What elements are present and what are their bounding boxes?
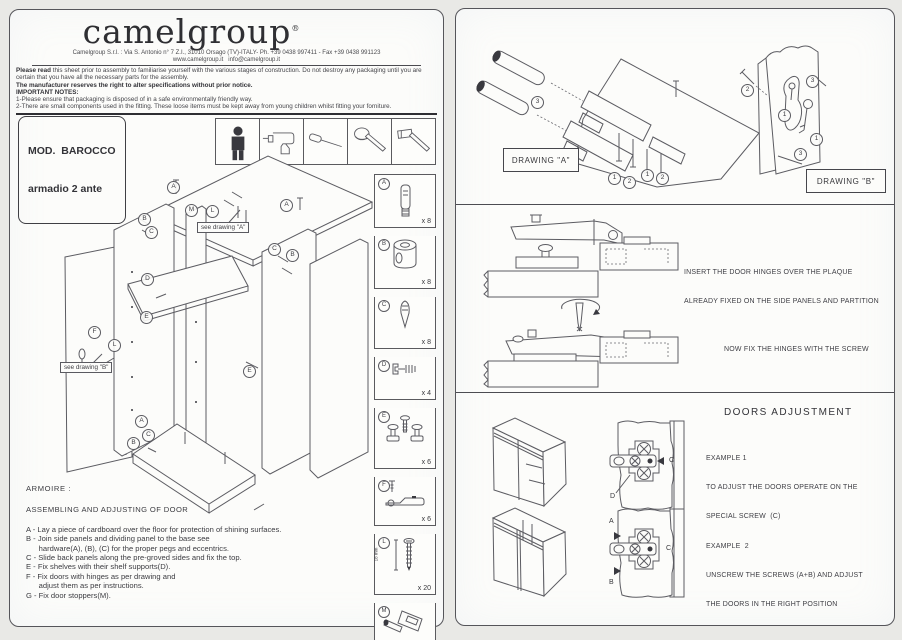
- part-L: L 18 mm x 20: [374, 534, 436, 595]
- part-L-dimension: 18 mm: [373, 548, 378, 562]
- drawing-a-num-3: 3: [531, 96, 544, 109]
- label-F-door: F: [88, 326, 101, 339]
- step-b-cont: hardware(A), (B), (C) for the proper peg…: [26, 544, 366, 553]
- tool-hammer: [392, 118, 436, 165]
- drawing-a-num-2: 2: [623, 176, 636, 189]
- note-manufacturer: The manufacturer reserves the right to a…: [16, 82, 437, 89]
- cam-lock-icon: [383, 236, 427, 272]
- scanned-instruction-sheet: camelgroup® Camelgroup S.r.l. : Via S. A…: [0, 0, 902, 640]
- step-b: B - Join side panels and dividing panel …: [26, 534, 366, 543]
- step-f: F - Fix doors with hinges as per drawing…: [26, 572, 366, 581]
- label-C-right: C: [268, 243, 281, 256]
- contact-line: www.camelgroup.it info@camelgroup.it: [10, 57, 443, 64]
- assembly-instructions: ARMOIRE : ASSEMBLING AND ADJUSTING OF DO…: [26, 484, 366, 600]
- label-C-left: C: [145, 226, 158, 239]
- example-1-title: EXAMPLE 1: [706, 454, 858, 464]
- example-2-line1: UNSCREW THE SCREWS (A+B) AND ADJUST: [706, 571, 863, 581]
- part-C: C x 8: [374, 297, 436, 349]
- plate2-label-B: B: [609, 579, 614, 586]
- step-g: G - Fix door stoppers(M).: [26, 591, 366, 600]
- label-E-right: E: [243, 365, 256, 378]
- part-C-qty: x 8: [422, 339, 431, 346]
- part-B-letter: B: [378, 239, 390, 251]
- company-address: Camelgroup S.r.l. : Via S. Antonio n° 7 …: [10, 50, 443, 64]
- hardware-parts-list: A x 8 B x 8 C: [374, 174, 436, 640]
- part-F-qty: x 6: [422, 516, 431, 523]
- part-A-letter: A: [378, 178, 390, 190]
- part-D-qty: x 4: [422, 390, 431, 397]
- example-2-line2: THE DOORS IN THE RIGHT POSITION: [706, 600, 863, 610]
- note-important: IMPORTANT NOTES:: [16, 89, 437, 96]
- callout-see-drawing-a: see drawing "A": [197, 222, 249, 233]
- part-B: B x 8: [374, 236, 436, 289]
- step-f-cont: adjust them as per instructions.: [26, 581, 366, 590]
- hinge-fix-text: NOW FIX THE HINGES WITH THE SCREW: [724, 345, 869, 355]
- label-B-right: B: [286, 249, 299, 262]
- label-A-top-left: A: [167, 181, 180, 194]
- callout-see-drawing-b: see drawing "B": [60, 362, 112, 373]
- drawing-b-num-3b: 3: [794, 148, 807, 161]
- part-E: E x 6: [374, 408, 436, 469]
- label-A-top-right: A: [280, 199, 293, 212]
- label-B-base: B: [127, 437, 140, 450]
- drawing-b-num-1b: 1: [810, 133, 823, 146]
- label-C-base: C: [142, 429, 155, 442]
- brand-logo: camelgroup®: [10, 12, 373, 51]
- doors-adjustment-title: DOORS ADJUSTMENT: [724, 407, 853, 418]
- label-L-top: L: [206, 205, 219, 218]
- part-F-letter: F: [378, 480, 390, 492]
- email: info@camelgroup.it: [228, 57, 280, 63]
- part-B-qty: x 8: [422, 279, 431, 286]
- step-e: E - Fix shelves with their shelf support…: [26, 562, 366, 571]
- part-F: F x 6: [374, 477, 436, 526]
- part-M-stopper: M x 2: [374, 603, 436, 640]
- assembly-notes: Please read this sheet prior to assembly…: [16, 67, 437, 115]
- left-page: camelgroup® Camelgroup S.r.l. : Via S. A…: [9, 9, 444, 627]
- assembly-steps: A - Lay a piece of cardboard over the fl…: [26, 525, 366, 600]
- part-E-qty: x 6: [422, 459, 431, 466]
- example-1-line2: SPECIAL SCREW (C): [706, 512, 858, 522]
- drawing-b-num-1: 1: [778, 109, 791, 122]
- part-D: D x 4: [374, 357, 436, 400]
- dowel-peg-icon: [383, 183, 427, 219]
- label-D-shelf: D: [141, 273, 154, 286]
- label-B-left: B: [138, 213, 151, 226]
- part-L-letter: L: [378, 537, 390, 549]
- label-M-top: M: [185, 204, 198, 217]
- website: www.camelgroup.it: [173, 57, 223, 63]
- armoire-subtitle: ASSEMBLING AND ADJUSTING OF DOOR: [26, 505, 366, 514]
- drawing-a-num-1b: 1: [641, 169, 654, 182]
- hinge-plate-example-2: [604, 507, 699, 599]
- hinge-insert-text: INSERT THE DOOR HINGES OVER THE PLAQUE A…: [684, 249, 879, 326]
- cabinet-example-2: [481, 504, 581, 599]
- shelf-support-screw-icon: [383, 357, 427, 381]
- right-page: 3 1 2 1 2 DRAWING "A" 2 3 1 1 3 DRAWING …: [455, 8, 895, 626]
- label-L-door: L: [108, 339, 121, 352]
- hinge-plate-example-1: [604, 419, 699, 511]
- drawing-b-label: DRAWING "B": [806, 169, 886, 193]
- plate2-label-C: C: [666, 545, 671, 552]
- drawing-a-label: DRAWING "A": [503, 148, 579, 172]
- address-line: Camelgroup S.r.l. : Via S. Antonio n° 7 …: [10, 50, 443, 57]
- address-divider: [32, 65, 421, 66]
- plate1-label-C: C: [669, 457, 674, 464]
- note-1: 1-Please ensure that packaging is dispos…: [16, 96, 437, 103]
- step-c: C - Slide back panels along the pre-grov…: [26, 553, 366, 562]
- note-2: 2-There are small components used in the…: [16, 103, 437, 110]
- hinge-insert-line2: ALREADY FIXED ON THE SIDE PANELS AND PAR…: [684, 297, 879, 307]
- registered-mark: ®: [291, 24, 300, 33]
- part-C-letter: C: [378, 300, 390, 312]
- plate1-label-D: D: [610, 493, 615, 500]
- plate2-label-A: A: [609, 518, 614, 525]
- hammer-icon: [394, 121, 434, 163]
- part-M1-letter: M: [378, 606, 390, 618]
- part-E-letter: E: [378, 411, 390, 423]
- part-A: A x 8: [374, 174, 436, 228]
- part-A-qty: x 8: [422, 218, 431, 225]
- hinge-insert-line1: INSERT THE DOOR HINGES OVER THE PLAQUE: [684, 268, 879, 278]
- note-read-first: Please read this sheet prior to assembly…: [16, 67, 437, 82]
- example-2-text: EXAMPLE 2 UNSCREW THE SCREWS (A+B) AND A…: [706, 523, 863, 629]
- drawing-b-num-3: 3: [806, 75, 819, 88]
- label-A-base: A: [135, 415, 148, 428]
- drawing-b-num-2: 2: [741, 84, 754, 97]
- label-E-left: E: [140, 311, 153, 324]
- part-D-letter: D: [378, 360, 390, 372]
- plastic-plug-icon: [383, 297, 427, 331]
- part-L-qty: x 20: [418, 585, 431, 592]
- armoire-title: ARMOIRE :: [26, 484, 366, 493]
- drawing-a-num-1: 1: [608, 172, 621, 185]
- step-a: A - Lay a piece of cardboard over the fl…: [26, 525, 366, 534]
- example-2-title: EXAMPLE 2: [706, 542, 863, 552]
- drawing-a-num-2b: 2: [656, 172, 669, 185]
- section-divider-2: [456, 392, 894, 393]
- cabinet-example-1: [481, 414, 581, 509]
- example-1-line1: TO ADJUST THE DOORS OPERATE ON THE: [706, 483, 858, 493]
